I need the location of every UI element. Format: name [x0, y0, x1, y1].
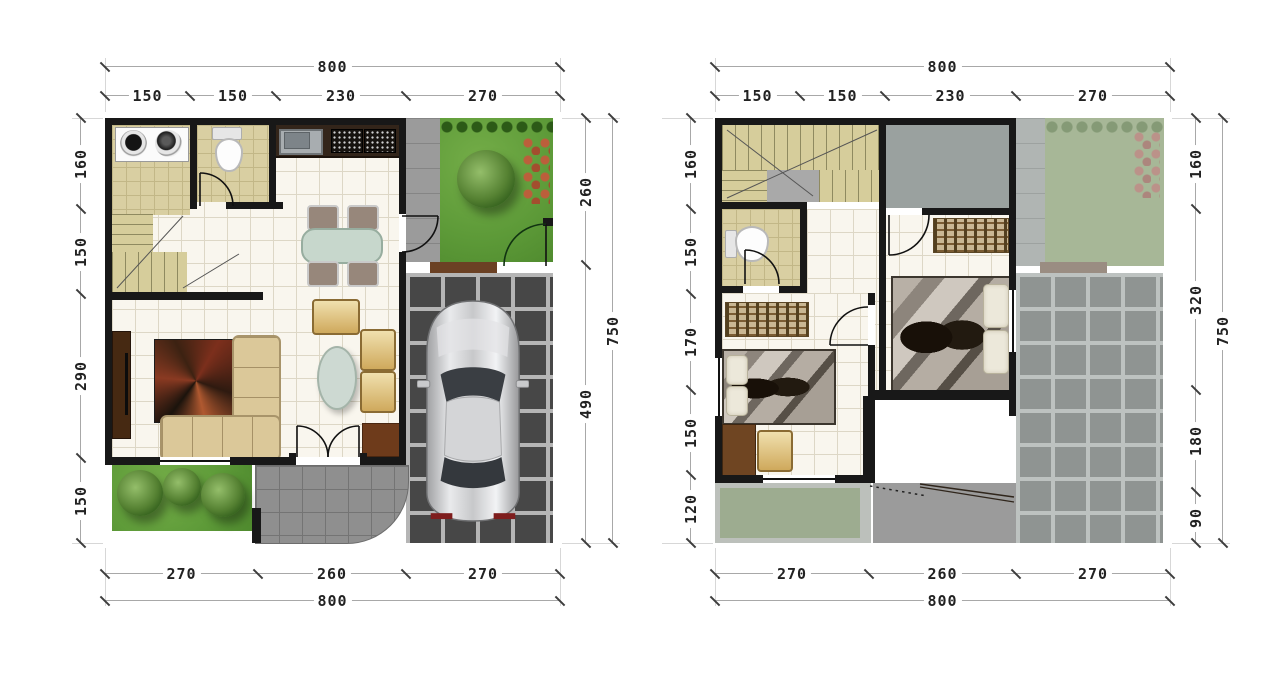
wall: [105, 118, 406, 125]
bedroom1-door-opening: [868, 305, 875, 345]
car-icon: [417, 296, 529, 526]
dim-line-upper-top-total: 800: [715, 66, 1170, 67]
porch-below: [1016, 118, 1045, 266]
doormat-below: [1040, 262, 1107, 273]
tv-cabinet: [112, 331, 131, 439]
gate-post: [543, 218, 553, 226]
upper-stairs-run-2: [722, 170, 767, 202]
dim-label: 750: [605, 311, 622, 349]
dim-label: 120: [683, 490, 700, 528]
ground-floor-plan: [105, 118, 560, 543]
wall: [879, 118, 886, 215]
washing-machine-icon: [120, 130, 147, 157]
tv-icon: [125, 353, 128, 415]
wall: [715, 202, 807, 209]
pillow: [983, 284, 1009, 328]
dim-label: 320: [1188, 280, 1205, 318]
window-glass-line: [1012, 290, 1014, 352]
upper-stairs-run-3: [819, 170, 879, 202]
wall: [715, 118, 1016, 125]
dim-label: 160: [1188, 144, 1205, 182]
dim-tick-icon: [1011, 91, 1022, 102]
stairs-turn: [112, 252, 187, 292]
wall-stub: [1009, 400, 1016, 416]
dim-label: 150: [683, 232, 700, 270]
stove-icon-2: [364, 129, 396, 153]
dim-tick-icon: [1011, 569, 1022, 580]
garden-bush-icon: [201, 473, 245, 517]
roof-deck: [886, 125, 1009, 208]
dim-label: 270: [464, 88, 502, 105]
dim-label: 800: [313, 593, 351, 610]
dim-line-upper-top-segments: 150 150 230 270: [715, 95, 1170, 96]
side-porch: [406, 118, 440, 266]
dim-label: 490: [578, 385, 595, 423]
entry-door-opening: [296, 457, 360, 465]
dim-tick-icon: [271, 91, 282, 102]
garden-bush-icon: [457, 150, 515, 208]
dim-tick-icon: [401, 569, 412, 580]
pillow: [726, 386, 748, 416]
walk-gap: [497, 262, 553, 273]
dim-tick-icon: [880, 91, 891, 102]
armchair: [312, 299, 360, 335]
dim-label: 150: [823, 88, 861, 105]
wall: [715, 118, 722, 483]
dim-label: 160: [683, 144, 700, 182]
window-glass-line: [718, 358, 720, 416]
dim-label: 150: [128, 88, 166, 105]
stair-landing: [767, 170, 819, 202]
kitchen-sink-basin: [284, 132, 310, 149]
wardrobe: [725, 302, 809, 337]
dim-tick-icon: [76, 453, 87, 464]
wall: [800, 209, 807, 293]
dim-label: 90: [1188, 503, 1205, 531]
porch-door-opening: [399, 214, 406, 252]
dim-tick-icon: [1191, 487, 1202, 498]
dim-label: 270: [464, 566, 502, 583]
dim-label: 800: [923, 593, 961, 610]
dim-line-upper-left-segments: 160 150 170 150 120: [690, 118, 691, 543]
dim-tick-icon: [1191, 204, 1202, 215]
pillow: [726, 355, 748, 385]
extension-line: [662, 543, 713, 544]
dim-line-upper-bottom-total: 800: [715, 600, 1170, 601]
balcony-green-roof: [720, 488, 860, 538]
flower-bed: [523, 138, 550, 204]
dim-tick-icon: [401, 91, 412, 102]
dryer-icon: [155, 130, 182, 157]
dining-chair: [347, 261, 379, 287]
dim-label: 260: [923, 566, 961, 583]
carport-below: [1016, 273, 1163, 543]
garden-hedge: [440, 118, 553, 136]
stove-icon: [331, 129, 363, 153]
garden-bush-icon: [163, 468, 201, 506]
wall: [226, 202, 283, 209]
dim-label: 180: [1188, 422, 1205, 460]
dim-label: 160: [73, 144, 90, 182]
dim-label: 230: [931, 88, 969, 105]
extension-line: [72, 543, 103, 544]
wardrobe: [933, 218, 1009, 253]
dim-label: 260: [313, 566, 351, 583]
extension-line: [662, 118, 713, 119]
dim-line-ground-right-segments: 260 490: [585, 118, 586, 543]
dim-tick-icon: [1191, 385, 1202, 396]
entry-mat: [362, 423, 401, 457]
wall: [863, 396, 871, 483]
dim-label: 150: [73, 232, 90, 270]
coffee-table: [317, 346, 357, 410]
flowers-below: [1134, 132, 1160, 198]
ground-level-below: [1016, 118, 1170, 543]
wall: [1009, 118, 1016, 400]
garden-bush-icon: [117, 470, 163, 516]
dim-label: 290: [73, 357, 90, 395]
dim-tick-icon: [686, 470, 697, 481]
wall: [190, 118, 197, 209]
pillow: [983, 330, 1009, 374]
stairs-flight: [112, 214, 153, 252]
desk: [722, 424, 756, 476]
door-post: [289, 453, 296, 465]
window-glass-line: [763, 478, 835, 480]
wall: [105, 292, 263, 300]
wall: [269, 118, 276, 206]
dim-line-ground-left-segments: 160 150 290 150: [80, 118, 81, 543]
dim-label: 230: [322, 88, 360, 105]
dim-line-ground-top-segments: 150 150 230 270: [105, 95, 560, 96]
extension-line: [72, 118, 103, 119]
dim-label: 150: [683, 413, 700, 451]
dim-tick-icon: [76, 204, 87, 215]
dim-line-ground-bottom-segments: 270 260 270: [105, 573, 560, 574]
dim-tick-icon: [76, 289, 87, 300]
dim-line-upper-bottom-segments: 270 260 270: [715, 573, 1170, 574]
dining-chair: [307, 261, 339, 287]
sofa-l-horizontal: [160, 415, 281, 461]
dim-label: 750: [1215, 311, 1232, 349]
armchair: [360, 371, 396, 413]
bath-door-opening: [743, 286, 779, 293]
dim-tick-icon: [795, 91, 806, 102]
doormat: [430, 262, 497, 273]
upper-floor-plan: [715, 118, 1170, 543]
dim-tick-icon: [581, 260, 592, 271]
dim-tick-icon: [185, 91, 196, 102]
dim-tick-icon: [686, 204, 697, 215]
dim-line-upper-right-total: 750: [1222, 118, 1223, 543]
dim-label: 150: [738, 88, 776, 105]
armchair: [360, 329, 396, 371]
dining-table: [301, 228, 383, 264]
wall: [868, 390, 1016, 400]
bedroom2-door-opening: [886, 208, 922, 215]
wall: [879, 215, 886, 400]
upper-stairs-run: [722, 125, 879, 170]
window-glass-line: [160, 460, 230, 462]
wall: [399, 118, 406, 465]
dim-line-ground-right-total: 750: [612, 118, 613, 543]
dim-label: 150: [214, 88, 252, 105]
dim-label: 800: [313, 59, 351, 76]
dim-label: 270: [162, 566, 200, 583]
paved-path: [255, 465, 409, 544]
door-post: [360, 453, 367, 465]
wall-stub: [252, 508, 261, 543]
desk-chair: [757, 430, 793, 472]
dim-line-ground-top-total: 800: [105, 66, 560, 67]
dim-label: 260: [578, 172, 595, 210]
dim-label: 170: [683, 323, 700, 361]
dim-tick-icon: [253, 569, 264, 580]
dim-label: 270: [1074, 88, 1112, 105]
dim-tick-icon: [686, 289, 697, 300]
dim-tick-icon: [686, 385, 697, 396]
dim-label: 270: [773, 566, 811, 583]
living-room-rug: [154, 339, 238, 423]
dim-label: 270: [1074, 566, 1112, 583]
dim-tick-icon: [864, 569, 875, 580]
dim-label: 800: [923, 59, 961, 76]
dim-line-upper-right-segments: 160 320 180 90: [1195, 118, 1196, 543]
dim-line-ground-bottom-total: 800: [105, 600, 560, 601]
walk-gap: [406, 262, 430, 273]
dim-label: 150: [73, 481, 90, 519]
floorplan-canvas: 800 150 150 230 270 160 150 290 150 260 …: [0, 0, 1280, 696]
sloped-roof: [873, 483, 1016, 543]
